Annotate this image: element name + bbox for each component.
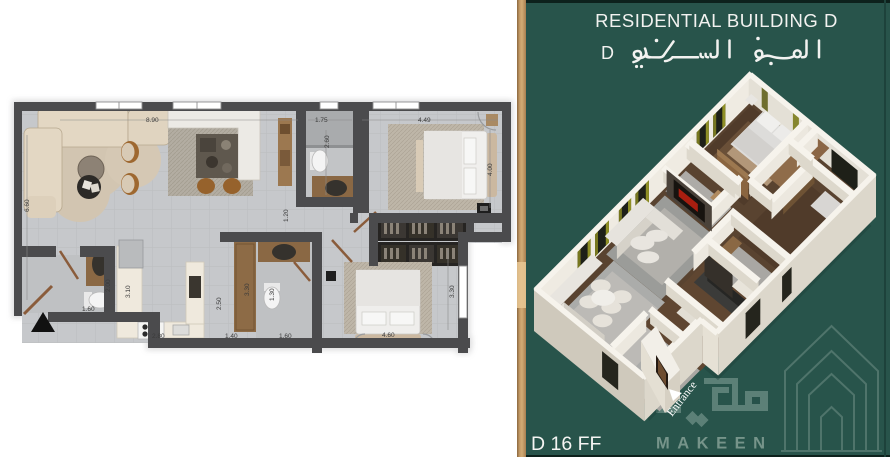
svg-text:8.90: 8.90 bbox=[146, 117, 159, 124]
svg-text:1.75: 1.75 bbox=[315, 117, 328, 124]
svg-text:D 16 FF: D 16 FF bbox=[531, 433, 602, 455]
svg-text:RESIDENTIAL BUILDING D: RESIDENTIAL BUILDING D bbox=[595, 10, 838, 31]
svg-text:3.10: 3.10 bbox=[125, 285, 132, 298]
svg-text:2.50: 2.50 bbox=[216, 297, 223, 310]
svg-text:D: D bbox=[601, 43, 614, 63]
svg-text:6.60: 6.60 bbox=[24, 199, 31, 212]
svg-text:4.49: 4.49 bbox=[418, 117, 431, 124]
svg-text:MAKEEN: MAKEEN bbox=[656, 435, 773, 453]
svg-text:3.30: 3.30 bbox=[449, 285, 456, 298]
svg-text:1.30: 1.30 bbox=[269, 288, 276, 301]
svg-text:1.20: 1.20 bbox=[283, 209, 290, 222]
svg-text:4.60: 4.60 bbox=[382, 332, 395, 339]
svg-text:1.60: 1.60 bbox=[279, 333, 292, 340]
svg-text:2.60: 2.60 bbox=[324, 135, 331, 148]
svg-text:1.40: 1.40 bbox=[225, 333, 238, 340]
svg-text:3.30: 3.30 bbox=[244, 283, 251, 296]
svg-text:2.00: 2.00 bbox=[105, 279, 112, 292]
svg-text:1.60: 1.60 bbox=[82, 306, 95, 313]
svg-text:4.00: 4.00 bbox=[487, 163, 494, 176]
svg-text:2.80: 2.80 bbox=[152, 333, 165, 340]
